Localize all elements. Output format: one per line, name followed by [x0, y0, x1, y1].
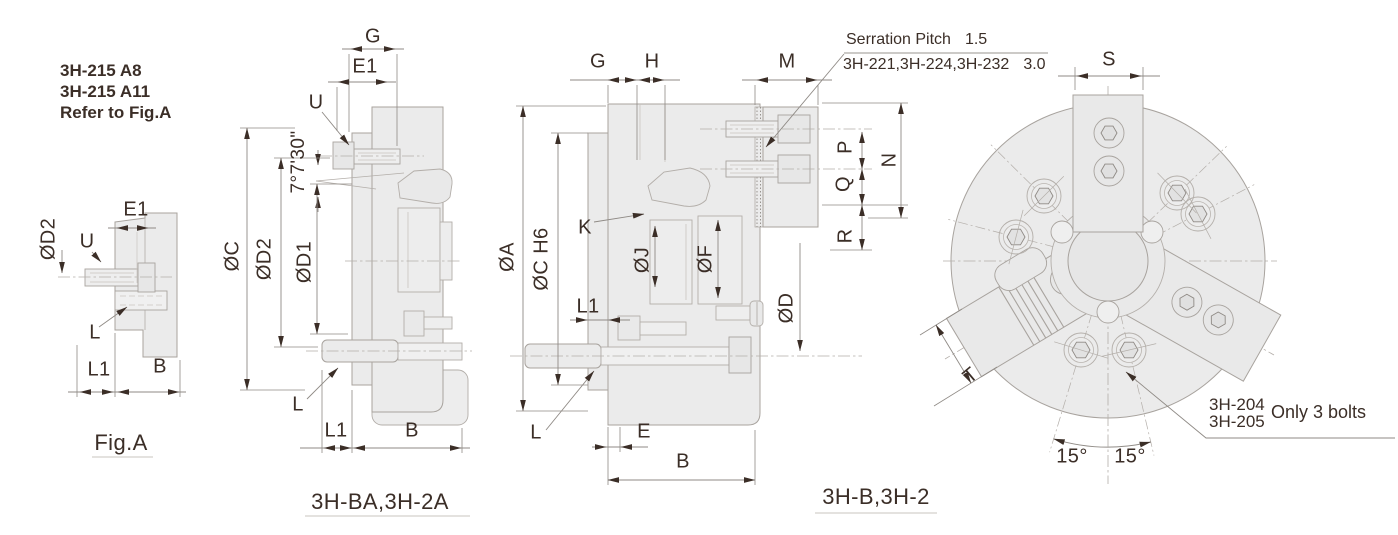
model-note-line3: Refer to Fig.A [60, 102, 171, 123]
figba-dim-b: B [405, 420, 419, 443]
figb-dim-h: H [645, 51, 660, 74]
figb-dim-j: ØJ [632, 247, 655, 273]
figa-dim-b: B [153, 356, 167, 379]
figb-dim-e: E [637, 421, 651, 444]
figb-dim-q: Q [833, 176, 856, 192]
figb-dim-k: K [578, 217, 592, 240]
figba-dim-l1: L1 [324, 420, 347, 443]
figb-dim-n: N [879, 153, 902, 168]
model-note-line1: 3H-215 A8 [60, 60, 171, 81]
front-bolt-note-text: Only 3 bolts [1271, 402, 1366, 423]
serration-note-line2: 3H-221,3H-224,3H-2323.0 [843, 56, 1046, 74]
front-angle-left: 15° [1056, 446, 1087, 469]
figa-caption: Fig.A [94, 430, 147, 456]
figa-dim-u: U [80, 231, 95, 254]
front-angle-right: 15° [1114, 446, 1145, 469]
fig-ba-drawing [240, 49, 472, 516]
figba-dim-d1: ØD1 [294, 241, 317, 283]
figba-dim-c: ØC [222, 241, 245, 272]
serration-models-pitch-value: 3.0 [1023, 56, 1045, 73]
model-reference-note: 3H-215 A8 3H-215 A11 Refer to Fig.A [60, 60, 171, 123]
figba-dim-g: G [365, 26, 381, 49]
front-bolt-note-model1: 3H-204 [1209, 396, 1265, 413]
figb-dim-g: G [590, 51, 606, 74]
front-bolt-note-model2: 3H-205 [1209, 413, 1265, 430]
model-note-line2: 3H-215 A11 [60, 81, 171, 102]
figb-dim-a: ØA [497, 242, 520, 272]
figb-dim-r: R [835, 229, 858, 244]
serration-note-label: Serration Pitch [846, 31, 951, 48]
figba-dim-e1: E1 [352, 56, 377, 79]
serration-pitch-value: 1.5 [965, 31, 987, 48]
figba-dim-u: U [309, 92, 324, 115]
fig-a-drawing [58, 213, 186, 457]
catalog-drawing-page: 3H-215 A8 3H-215 A11 Refer to Fig.A ØD2 … [0, 0, 1398, 535]
figa-dim-l: L [89, 322, 101, 345]
figb-dim-c-h6: ØC H6 [531, 227, 554, 290]
serration-note-line1: Serration Pitch1.5 [846, 31, 987, 49]
figb-dim-d: ØD [776, 293, 799, 324]
figb-dim-p: P [835, 140, 858, 154]
figb-dim-l1: L1 [576, 296, 599, 319]
figb-caption: 3H-B,3H-2 [822, 484, 930, 510]
figba-caption: 3H-BA,3H-2A [311, 489, 449, 515]
figba-dim-d2: ØD2 [254, 238, 277, 280]
figa-dim-l1: L1 [87, 359, 110, 382]
serration-note-models: 3H-221,3H-224,3H-232 [843, 56, 1009, 73]
figb-dim-m: M [778, 51, 795, 74]
figa-dim-e1: E1 [123, 199, 148, 222]
front-bolt-note-models: 3H-204 3H-205 [1209, 396, 1265, 430]
figb-dim-l: L [530, 422, 542, 445]
figba-dim-l: L [292, 394, 304, 417]
figb-dim-b: B [676, 451, 690, 474]
figb-dim-f: ØF [695, 245, 718, 274]
figba-dim-taper-angle: 7°7'30" [288, 130, 310, 193]
figa-dim-d2: ØD2 [38, 218, 61, 260]
front-dim-s: S [1102, 49, 1116, 72]
